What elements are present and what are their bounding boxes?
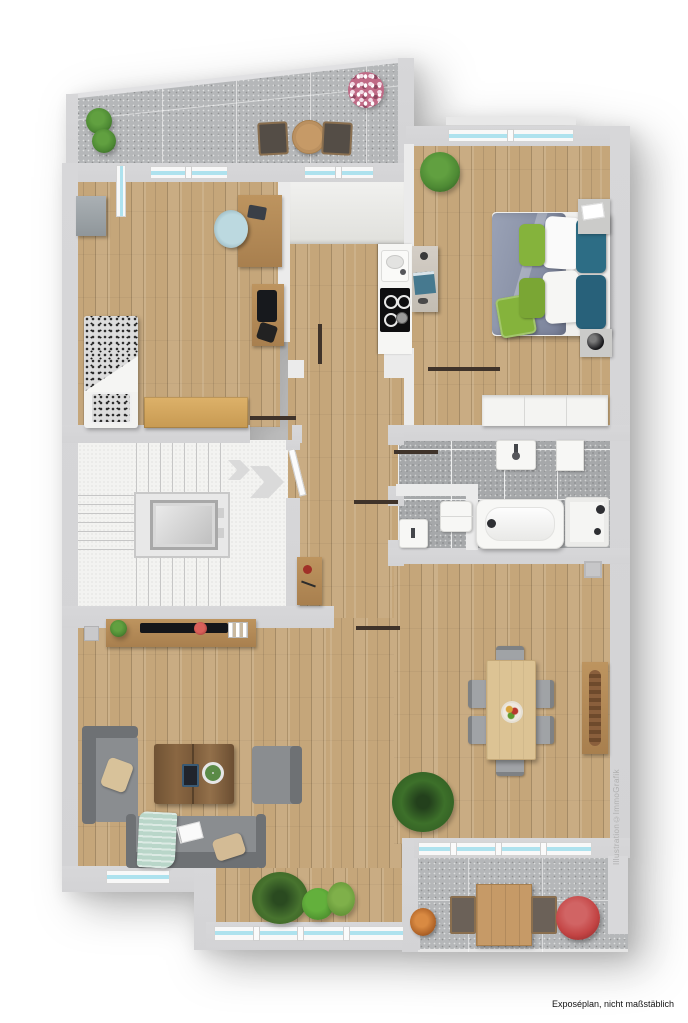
- papers: [581, 203, 605, 221]
- bedroom-plant: [420, 152, 460, 192]
- window-mullion: [335, 166, 342, 179]
- toilet-divider: [441, 516, 473, 517]
- dining-south-window: [418, 842, 592, 856]
- living-west-window: [106, 870, 170, 884]
- balcony-bench: [450, 896, 476, 934]
- dining-plant-large: [392, 772, 454, 832]
- burner-icon: [384, 295, 398, 309]
- dining-sideboard: [582, 662, 608, 754]
- pillow-teal: [576, 275, 606, 329]
- bedroom-west-wall-upper: [404, 144, 414, 246]
- window-mullion: [185, 166, 192, 179]
- kitchen-sink: [381, 250, 409, 282]
- wc-sink: [399, 519, 428, 548]
- apartment-floor-plan: [0, 0, 688, 1023]
- sideboard-flowers: [194, 622, 207, 635]
- sink-faucet-icon: [512, 452, 520, 460]
- sofa-armrest: [256, 814, 266, 868]
- terrace-door: [116, 165, 126, 217]
- balcony-bench: [531, 896, 557, 934]
- small-object: [420, 252, 428, 260]
- dining-chair: [534, 716, 554, 744]
- pan-icon: [396, 312, 408, 324]
- bath-west-wall-a: [388, 425, 404, 445]
- terrace-bush-plant: [92, 129, 116, 153]
- magazine: [413, 271, 436, 295]
- window-mullion: [297, 926, 304, 941]
- bedroom-south-wall: [404, 425, 630, 441]
- bathroom-door-leaf: [394, 450, 438, 454]
- window-mullion: [253, 926, 260, 941]
- decor-object: [303, 565, 312, 574]
- bedroom-window-sill: [446, 117, 576, 125]
- corner-sofa-back: [82, 726, 96, 824]
- elevator-cab: [150, 500, 218, 550]
- kitchen-door-leaf-shadow: [318, 324, 322, 364]
- dining-chair: [534, 680, 554, 708]
- armchair-back: [290, 746, 302, 804]
- tablet: [182, 764, 199, 787]
- terrace-left-wall: [66, 94, 78, 168]
- bathtub: [476, 499, 564, 549]
- decor-runner: [589, 670, 601, 746]
- single-bed-pillow: [90, 392, 132, 424]
- shower-drain-icon: [594, 528, 601, 535]
- single-bed-duvet: [84, 316, 138, 392]
- cooktop: [380, 288, 410, 332]
- room1-door-leaf: [250, 416, 296, 420]
- elevator-door-mark: [218, 528, 224, 538]
- window-mullion: [540, 842, 547, 856]
- sink-faucet-icon: [411, 528, 415, 538]
- toilet: [440, 501, 472, 532]
- bedroom-door-leaf: [428, 367, 500, 371]
- balcony-flower-pot: [410, 908, 436, 936]
- monitor: [257, 290, 277, 322]
- pillow-green: [519, 278, 545, 318]
- stairs-left-flight: [78, 494, 136, 550]
- elevator-door-mark: [218, 508, 224, 518]
- hallway-cabinet: [297, 557, 322, 605]
- balcony-right-wall: [608, 856, 628, 934]
- living-south-window: [214, 926, 404, 941]
- coffee-table: [154, 744, 234, 804]
- burner-icon: [397, 295, 411, 309]
- sink-basin: [386, 255, 404, 269]
- table-lamp-icon: [587, 333, 604, 350]
- bedroom-west-wall-lower: [404, 380, 414, 427]
- terrace-flower-pot: [348, 72, 384, 108]
- window-mullion: [450, 842, 457, 856]
- wall-mounted-panel: [76, 196, 106, 236]
- kitchen-side-table: [412, 246, 438, 312]
- fruit-bowl: [503, 703, 521, 721]
- kitchen-cabinet-zone: [288, 180, 406, 244]
- sofa-armrest: [126, 814, 136, 868]
- small-object: [418, 298, 428, 304]
- nightstand: [578, 199, 610, 234]
- stairs-lower-flight: [136, 556, 224, 608]
- decor-object: [301, 580, 316, 587]
- corner-sofa-back: [82, 726, 138, 738]
- living-plant-large: [252, 872, 308, 924]
- sink-faucet-icon: [400, 269, 406, 275]
- terrace-tile-grout: [162, 58, 163, 170]
- footer-note: Exposéplan, nicht maßstäblich: [552, 999, 674, 1009]
- kitchen-south-wall-stub: [288, 360, 304, 378]
- dresser-divider: [524, 395, 525, 426]
- stairs-upper-flight: [136, 442, 224, 494]
- wc-north-wall: [396, 484, 474, 496]
- shower-head-icon: [596, 505, 605, 514]
- window-mullion: [343, 926, 350, 941]
- terrace-chair: [321, 121, 353, 156]
- terrace-chair: [257, 121, 289, 156]
- window-mullion: [507, 129, 514, 142]
- floor-plan-scene: Illustration©ImmoGrafik Exposéplan, nich…: [0, 0, 688, 1023]
- watermark-text: Illustration©ImmoGrafik: [612, 743, 626, 865]
- window-mullion: [495, 842, 502, 856]
- dining-chair: [468, 716, 488, 744]
- utility-shaft: [584, 561, 602, 578]
- dining-chair: [468, 680, 488, 708]
- duvet-fold: [84, 356, 138, 392]
- pillow-green: [519, 224, 545, 266]
- bathroom-sink: [496, 440, 536, 470]
- balcony-red-plant: [556, 896, 600, 940]
- bathtub-faucet-icon: [487, 519, 496, 528]
- books: [228, 622, 248, 638]
- sideboard-plant: [110, 620, 127, 637]
- desk-chair: [214, 210, 248, 248]
- living-door-leaf: [356, 626, 400, 630]
- balcony-table: [476, 884, 532, 946]
- dining-table: [486, 660, 536, 760]
- west-outer-wall: [62, 163, 78, 881]
- mint-throw-blanket: [137, 811, 178, 869]
- structural-column: [84, 626, 99, 641]
- bedroom-dresser: [482, 395, 608, 426]
- tv: [140, 623, 228, 633]
- wc-door-leaf: [354, 500, 398, 504]
- washing-machine: [556, 440, 584, 471]
- shower: [565, 497, 609, 547]
- dresser-divider: [566, 395, 567, 426]
- decor-tray: [202, 762, 224, 784]
- wooden-bench: [144, 397, 248, 428]
- nightstand: [580, 329, 612, 357]
- living-plant-grass: [327, 882, 355, 916]
